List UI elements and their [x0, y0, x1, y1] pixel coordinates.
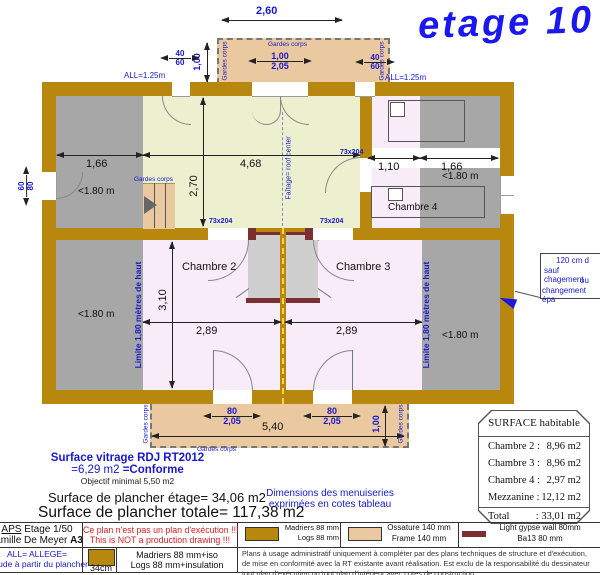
dim-window-60-80: 60 80 — [18, 175, 36, 197]
gardes-corps-label: Gardes corps — [398, 404, 405, 443]
allege-left-label: ALL=1.25m — [124, 71, 165, 80]
aps-line: APS Etage 1/50 — [0, 524, 84, 535]
floor-plan-page: etage 10 Gardes corps Gardes corps Garde… — [0, 0, 600, 575]
footer-border-mid — [0, 547, 600, 548]
surface-table-content: SURFACE habitable Chambre 2 : 8,96 m2 Ch… — [478, 410, 590, 524]
callout-line2: sauf chagement — [544, 266, 600, 284]
dim-bottom-door-right: 80 2,05 — [312, 407, 352, 427]
gardes-corps-label: Gardes corps — [222, 41, 229, 80]
callout-leader — [515, 291, 540, 298]
bed-pillow — [390, 102, 405, 117]
window-left — [42, 172, 57, 200]
surface-table-sep — [478, 507, 590, 508]
dim-110: 1,10 — [378, 161, 399, 173]
ridge-label: Faîtage= roof center — [286, 136, 293, 199]
callout-line1: 120 cm d — [556, 256, 589, 265]
dim-balcony-top-width: 2,60 — [256, 5, 277, 17]
dim-line-166-left — [57, 155, 143, 156]
jamb-chambre2 — [248, 228, 256, 240]
bed-pillow — [388, 188, 403, 201]
family-line: Famille De Meyer A3 — [0, 535, 86, 546]
label-under180-br: <1.80 m — [442, 330, 478, 341]
allege-line2: Altitude à partir du plancher — [0, 559, 88, 569]
page-title: etage 10 — [417, 0, 594, 48]
warning-line1: Ce plan n'est pas un plan d'exécution !!… — [83, 525, 237, 535]
dim-line-110 — [368, 158, 420, 159]
dim-line-468 — [143, 155, 360, 156]
window-top-right — [355, 82, 375, 97]
legend-ossature: Ossature 140 mm Frame 140 mm — [382, 523, 456, 545]
dim-line-289-left — [143, 322, 281, 323]
door-size-label: 73x204 — [209, 218, 232, 225]
dim-line-310 — [172, 242, 173, 388]
surface-table-sep — [478, 436, 590, 437]
dim-balcony-door: 1,00 2,05 — [257, 52, 303, 72]
dim-289-left: 2,89 — [196, 325, 217, 337]
legend-swatch-ossature — [348, 527, 382, 541]
ridge-line — [282, 112, 283, 226]
vitrage-line1: Surface vitrage RDJ RT2012 — [40, 452, 215, 464]
allege-line1: ALL= ALLEGE= — [0, 549, 84, 559]
floor-area-etage: Surface de plancher étage= 34,06 m2 — [48, 490, 266, 505]
closet-left — [248, 232, 280, 301]
door-leaf-bottom-left — [213, 350, 214, 390]
footer-vline — [340, 522, 341, 547]
legend-madriers: Madriers 88 mm Logs 88 mm — [279, 523, 339, 543]
dim-270: 2,70 — [188, 175, 200, 196]
closet-left-base — [246, 298, 280, 303]
disclaimer: Plans à usage administratif uniquement à… — [242, 549, 594, 575]
dim-window-40-60-left: 40 60 — [169, 50, 191, 68]
gardes-corps-label: Gardes corps — [268, 41, 307, 48]
dim-line-270 — [203, 98, 204, 226]
door-balcony-bottom-left — [213, 390, 252, 404]
menuiseries-note: Dimensions des menuiseries exprimées en … — [255, 488, 405, 510]
gardes-corps-label: Gardes corps — [134, 176, 173, 183]
door-leaf-bottom-right — [352, 350, 353, 390]
callout-line4: changement épa — [542, 286, 600, 304]
vitrage-line3: Objectif minimal 5,50 m2 — [40, 476, 215, 486]
dim-balcony-top-depth-line — [207, 43, 208, 82]
limite-label-right: Limite 1,80 mètres de haut — [421, 262, 431, 369]
door-chambre2 — [208, 228, 248, 240]
stair-divider — [165, 183, 166, 228]
callout-line3: ou — [580, 276, 589, 285]
stair-arrow — [144, 196, 157, 214]
madriers-line2: Logs 88 mm+insulation — [117, 560, 237, 570]
dim-bottom-door-left: 80 2,05 — [212, 407, 252, 427]
allege-right-label: ALL=1.25m — [385, 73, 426, 82]
label-under180-tl: <1.80 m — [78, 186, 114, 197]
dim-468: 4,68 — [240, 158, 261, 170]
legend-gypse: Light gypse wall 80mm Ba13 80 mm — [487, 523, 593, 545]
warning-line2: This is NOT a production drawing !!! — [83, 535, 237, 545]
door-size-label: 73x204 — [320, 218, 343, 225]
gardes-corps-label: Gardes corps — [143, 404, 150, 443]
dim-540: 5,40 — [262, 421, 283, 433]
label-under180-tr: <1.80 m — [442, 171, 478, 182]
window-right-divider — [500, 195, 514, 196]
jamb-chambre3 — [305, 228, 313, 240]
dim-window-40-60-right: 40 60 — [364, 54, 386, 72]
door-chambre3 — [313, 228, 353, 240]
window-top-left — [172, 82, 190, 97]
dim-166-left: 1,66 — [86, 158, 107, 170]
dim-line-166-right — [420, 158, 498, 159]
dim-balc100: 1,00 — [371, 415, 381, 433]
zone-low-bottom-right — [422, 240, 500, 390]
dim-line-540 — [152, 436, 404, 437]
door-balcony-bottom-right — [313, 390, 352, 404]
dim-line-289-right — [285, 322, 422, 323]
footer-vline — [458, 522, 459, 547]
door-size-label: 73x204 — [340, 149, 363, 156]
dim-balcony-top-width-line — [222, 20, 342, 21]
surface-table-header: SURFACE habitable — [478, 417, 590, 429]
label-chambre3: Chambre 3 — [336, 261, 390, 273]
vitrage-line2: =6,29 m2 =Conforme — [40, 464, 215, 476]
legend-swatch-madriers — [245, 527, 279, 541]
dim-line-balc100 — [385, 406, 386, 446]
label-under180-bl: <1.80 m — [78, 309, 114, 320]
wall-34cm-label: 34cm — [86, 563, 116, 573]
dim-310: 3,10 — [157, 289, 169, 310]
vitrage-note: Surface vitrage RDJ RT2012 =6,29 m2 =Con… — [40, 452, 215, 486]
closet-right-base — [286, 298, 320, 303]
legend-swatch-gypse — [462, 531, 486, 537]
door-arc-french-left — [252, 96, 281, 125]
label-chambre4: Chambre 4 — [388, 202, 437, 213]
madriers-line1: Madriers 88 mm+iso — [117, 550, 237, 560]
label-chambre2: Chambre 2 — [182, 261, 236, 273]
door-balcony-top — [252, 82, 308, 97]
dim-289-right: 2,89 — [336, 325, 357, 337]
wall-party-axis — [282, 228, 284, 404]
limite-label-left: Limite 1,80 mètres de haut — [133, 262, 143, 369]
